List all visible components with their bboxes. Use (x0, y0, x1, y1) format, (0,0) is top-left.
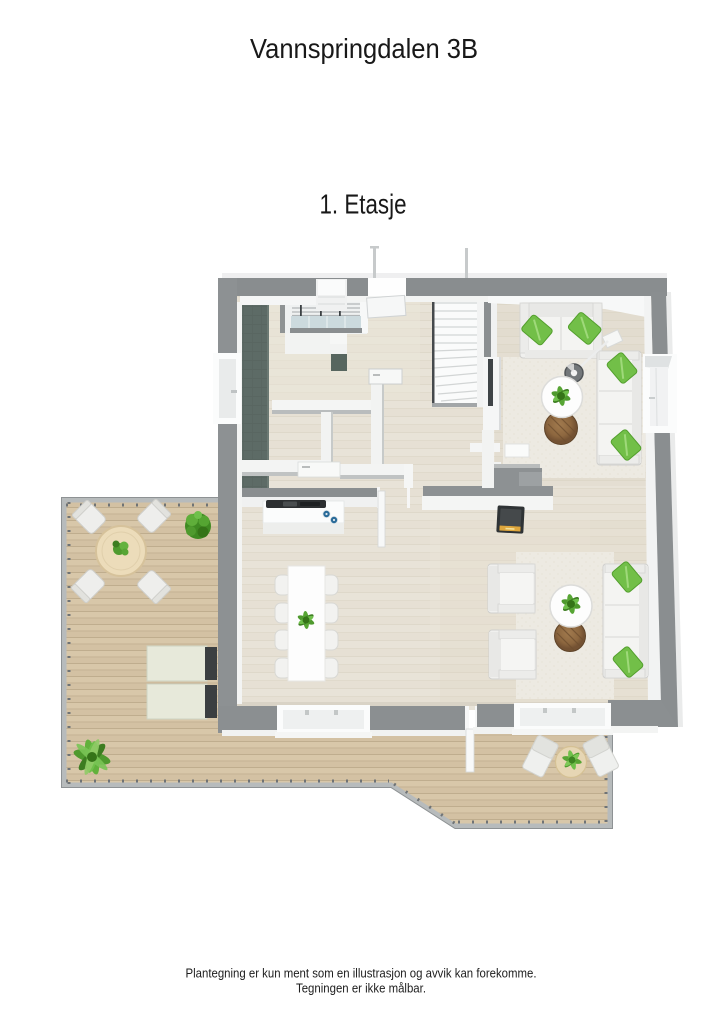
svg-text:1. Etasje: 1. Etasje (320, 189, 407, 220)
svg-text:Tegningen er ikke målbar.: Tegningen er ikke målbar. (296, 982, 426, 996)
svg-text:Plantegning er kun ment som en: Plantegning er kun ment som en illustras… (186, 967, 537, 981)
svg-text:Vannspringdalen 3B: Vannspringdalen 3B (250, 33, 478, 64)
